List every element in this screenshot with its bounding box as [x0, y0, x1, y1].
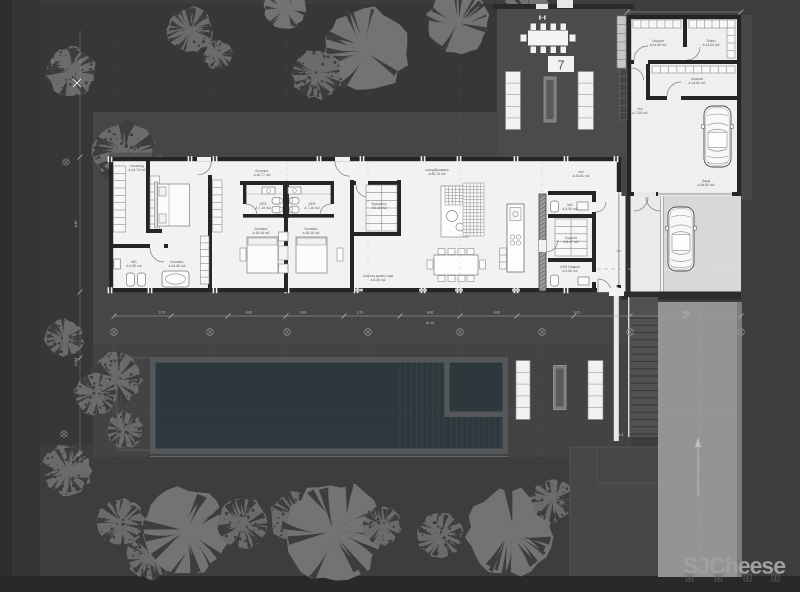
svg-text:A 7.00 m2: A 7.00 m2: [632, 111, 647, 115]
svg-text:Dressing: Dressing: [130, 164, 143, 168]
svg-text:A 5.00 m2: A 5.00 m2: [126, 264, 141, 268]
svg-text:A 5.00 m2: A 5.00 m2: [562, 269, 577, 273]
svg-text:9.90: 9.90: [300, 311, 307, 315]
svg-text:Dormitor: Dormitor: [171, 260, 184, 264]
svg-text:Depozit: Depozit: [652, 39, 664, 43]
svg-text:A 20.20 m2: A 20.20 m2: [252, 231, 269, 235]
svg-text:Dormitor: Dormitor: [256, 169, 269, 173]
svg-text:Hol: Hol: [637, 107, 642, 111]
svg-text:Depozit: Depozit: [691, 77, 703, 81]
svg-text:9.00: 9.00: [427, 311, 434, 315]
svg-text:A 12.04 m2: A 12.04 m2: [702, 43, 719, 47]
svg-text:A 61.00 m2: A 61.00 m2: [649, 43, 666, 47]
svg-text:A 80.76 m2: A 80.76 m2: [428, 172, 445, 176]
svg-text:A 20.20 m2: A 20.20 m2: [302, 231, 319, 235]
svg-text:A 33.91 m2: A 33.91 m2: [572, 174, 589, 178]
svg-text:Garaj: Garaj: [702, 179, 710, 183]
svg-text:8.49: 8.49: [74, 221, 78, 228]
svg-text:41.10: 41.10: [426, 321, 435, 325]
svg-text:A 6.36 m2: A 6.36 m2: [371, 206, 386, 210]
svg-text:GFS: GFS: [309, 202, 316, 206]
svg-text:A 12.74 m2: A 12.74 m2: [128, 168, 145, 172]
svg-text:Hol: Hol: [578, 170, 583, 174]
svg-text:WC: WC: [567, 203, 573, 207]
svg-text:9.70: 9.70: [159, 311, 166, 315]
svg-text:GFS: GFS: [260, 202, 267, 206]
svg-text:A 8.47 m2: A 8.47 m2: [563, 240, 578, 244]
svg-text:9.00: 9.00: [246, 311, 253, 315]
svg-text:7: 7: [557, 58, 564, 73]
svg-text:A 34.00 m2: A 34.00 m2: [697, 183, 714, 187]
svg-text:Tehnic: Tehnic: [706, 39, 716, 43]
svg-text:Dormitor: Dormitor: [255, 227, 268, 231]
svg-text:Living/Bucatarie: Living/Bucatarie: [425, 168, 449, 172]
svg-text:WC: WC: [131, 260, 137, 264]
svg-text:GFS Oaspeti: GFS Oaspeti: [560, 265, 580, 269]
svg-text:SJCheese: SJCheese: [683, 553, 786, 579]
svg-text:6.35: 6.35: [683, 311, 690, 315]
svg-text:A 3.50 m2: A 3.50 m2: [562, 207, 577, 211]
svg-text:9.00: 9.00: [494, 311, 501, 315]
svg-text:Depozit: Depozit: [565, 236, 577, 240]
svg-text:A 24.00 m2: A 24.00 m2: [168, 264, 185, 268]
svg-text:A 10.77 m2: A 10.77 m2: [253, 173, 270, 177]
svg-text:5.70: 5.70: [357, 311, 364, 315]
svg-text:1-1: 1-1: [618, 433, 624, 438]
svg-text:Spalatorie: Spalatorie: [371, 202, 386, 206]
svg-text:10.64: 10.64: [74, 358, 78, 367]
svg-text:5.70: 5.70: [574, 311, 581, 315]
svg-text:Camera pentru copii: Camera pentru copii: [363, 274, 393, 278]
svg-text:Dormitor: Dormitor: [305, 227, 318, 231]
svg-text:16.04: 16.04: [50, 58, 54, 66]
svg-text:A 9.40 m2: A 9.40 m2: [370, 278, 385, 282]
svg-text:A 7.10 m2: A 7.10 m2: [304, 206, 319, 210]
svg-text:A 7.10 m2: A 7.10 m2: [255, 206, 270, 210]
svg-text:A 14.42 m2: A 14.42 m2: [688, 81, 705, 85]
